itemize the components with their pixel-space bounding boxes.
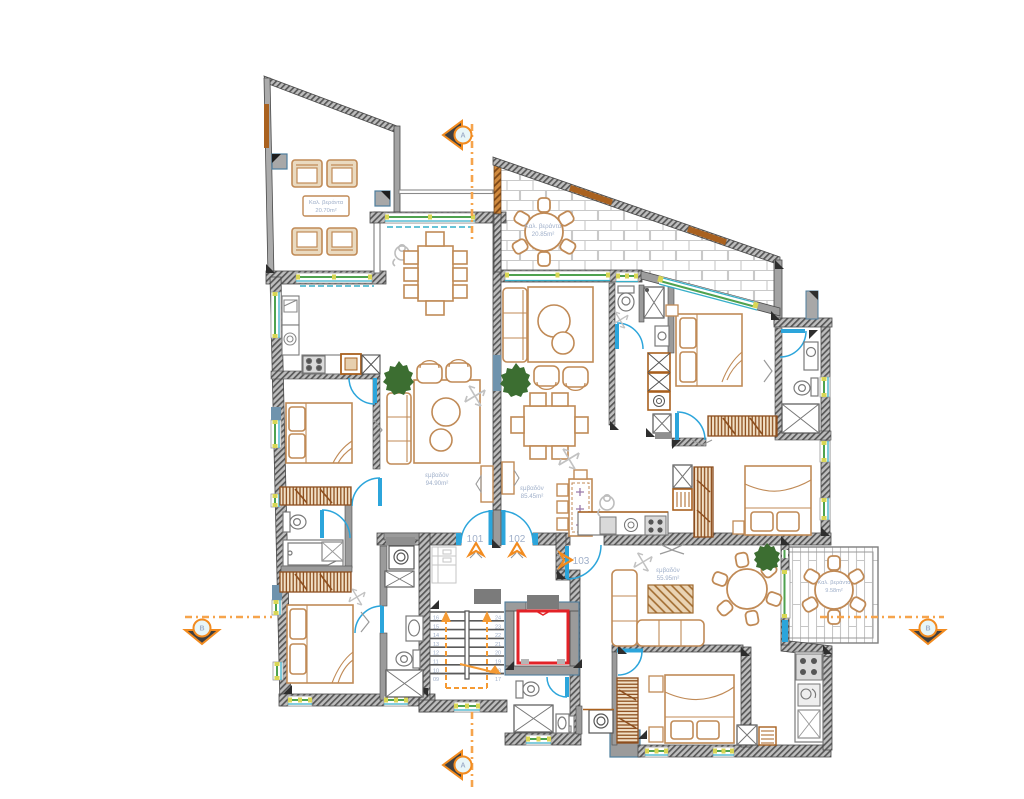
svg-text:A: A xyxy=(460,763,465,770)
svg-text:19: 19 xyxy=(495,660,501,666)
svg-text:85.45m²: 85.45m² xyxy=(521,493,544,500)
svg-text:13: 13 xyxy=(433,642,439,648)
svg-text:21: 21 xyxy=(495,642,501,648)
svg-text:55.95m²: 55.95m² xyxy=(657,575,680,582)
svg-text:εμβαδόν: εμβαδόν xyxy=(656,567,679,574)
svg-text:20: 20 xyxy=(495,651,501,657)
svg-text:22: 22 xyxy=(495,633,501,639)
svg-text:23: 23 xyxy=(495,624,501,630)
svg-text:20.85m²: 20.85m² xyxy=(532,231,555,238)
svg-text:103: 103 xyxy=(573,556,590,567)
svg-text:15: 15 xyxy=(433,624,439,630)
svg-text:94.90m²: 94.90m² xyxy=(426,480,449,487)
svg-text:16: 16 xyxy=(433,616,439,622)
svg-text:Καλ. βεράντα: Καλ. βεράντα xyxy=(525,223,562,230)
svg-text:14: 14 xyxy=(433,633,439,639)
svg-text:10: 10 xyxy=(433,668,439,674)
svg-text:20.70m²: 20.70m² xyxy=(315,208,336,214)
svg-text:εμβαδόν: εμβαδόν xyxy=(425,472,448,479)
svg-text:Καλ. βεράντα: Καλ. βεράντα xyxy=(309,199,344,206)
svg-text:11: 11 xyxy=(433,660,439,666)
svg-text:101: 101 xyxy=(467,534,484,545)
svg-text:A: A xyxy=(460,133,465,140)
svg-text:Καλ. βεράντα: Καλ. βεράντα xyxy=(817,579,851,586)
svg-text:24: 24 xyxy=(495,616,501,622)
svg-text:9.58m²: 9.58m² xyxy=(825,588,843,594)
svg-text:B: B xyxy=(925,626,930,633)
svg-text:εμβαδόν: εμβαδόν xyxy=(520,485,543,492)
svg-text:09: 09 xyxy=(433,677,439,683)
svg-text:B: B xyxy=(199,626,204,633)
svg-text:102: 102 xyxy=(509,534,526,545)
svg-text:17: 17 xyxy=(495,677,501,683)
svg-text:12: 12 xyxy=(433,651,439,657)
